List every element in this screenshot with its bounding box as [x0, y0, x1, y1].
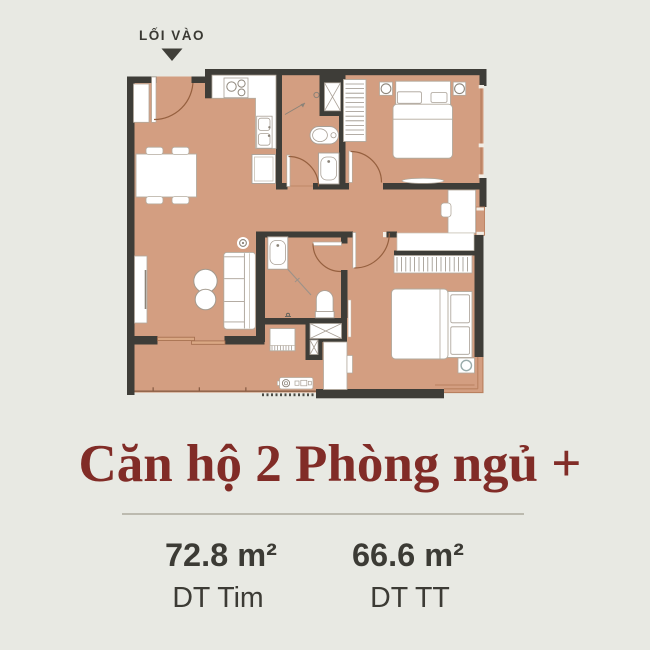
- svg-text:72.8 m²: 72.8 m²: [165, 537, 277, 573]
- svg-text:LỐI VÀO: LỐI VÀO: [139, 28, 205, 43]
- svg-text:Căn hộ 2 Phòng ngủ +: Căn hộ 2 Phòng ngủ +: [79, 435, 582, 493]
- svg-text:DT TT: DT TT: [370, 582, 450, 614]
- svg-text:DT Tim: DT Tim: [172, 582, 263, 614]
- svg-text:66.6 m²: 66.6 m²: [352, 537, 464, 573]
